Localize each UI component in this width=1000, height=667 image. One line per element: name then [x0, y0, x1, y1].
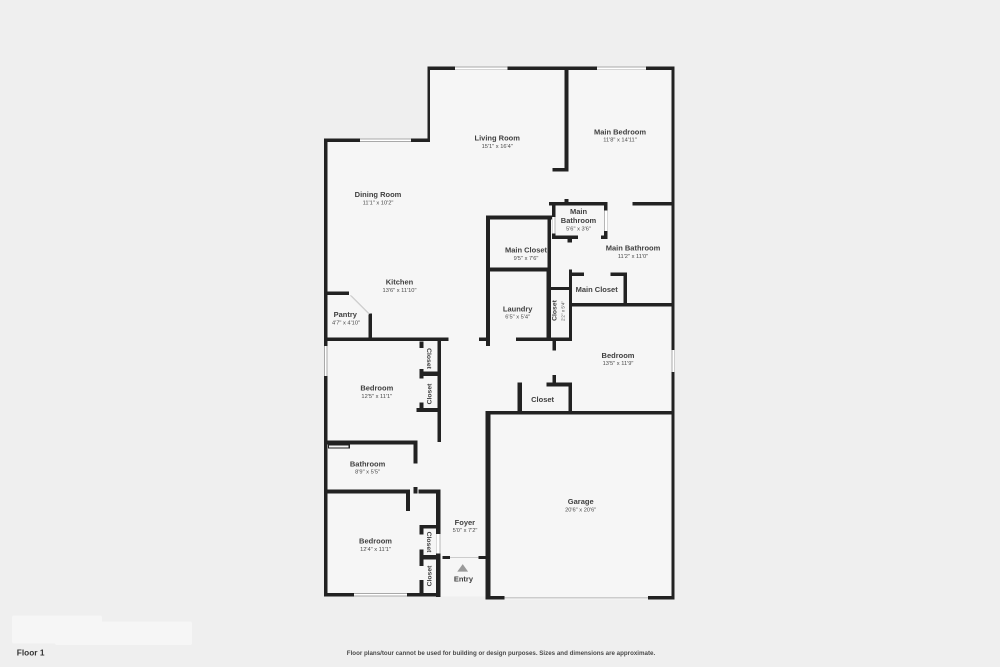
svg-text:20'6" x 20'6": 20'6" x 20'6"	[565, 507, 596, 513]
svg-text:Garage: Garage	[568, 497, 594, 506]
svg-text:Closet: Closet	[531, 395, 554, 404]
svg-text:11'2" x 11'0": 11'2" x 11'0"	[618, 254, 648, 260]
svg-text:13'5" x 11'9": 13'5" x 11'9"	[603, 361, 634, 367]
svg-text:Living Room: Living Room	[474, 134, 520, 143]
svg-text:Floor 1: Floor 1	[17, 648, 45, 658]
svg-text:8'9" x 5'5": 8'9" x 5'5"	[355, 470, 380, 476]
svg-text:Entry: Entry	[454, 575, 474, 584]
svg-text:Closet: Closet	[552, 299, 559, 321]
svg-text:Main Bathroom: Main Bathroom	[606, 244, 661, 253]
svg-text:Bedroom: Bedroom	[602, 351, 635, 360]
svg-text:Kitchen: Kitchen	[386, 278, 414, 287]
svg-text:12'5" x 11'1": 12'5" x 11'1"	[361, 394, 392, 400]
svg-text:Main: Main	[570, 207, 588, 216]
svg-text:Main Bedroom: Main Bedroom	[594, 128, 646, 137]
svg-text:11'8" x 14'11": 11'8" x 14'11"	[603, 138, 637, 144]
svg-text:Foyer: Foyer	[455, 518, 476, 527]
svg-text:5'0" x 7'2": 5'0" x 7'2"	[453, 528, 478, 534]
svg-text:Bathroom: Bathroom	[350, 460, 386, 469]
svg-text:Bathroom: Bathroom	[561, 216, 597, 225]
svg-text:Main Closet: Main Closet	[576, 285, 619, 294]
svg-text:Closet: Closet	[425, 348, 432, 370]
svg-text:2'2" x 5'4": 2'2" x 5'4"	[561, 301, 566, 321]
svg-text:Bedroom: Bedroom	[359, 537, 392, 546]
svg-text:4'7" x 4'10": 4'7" x 4'10"	[332, 320, 360, 326]
svg-text:9'5" x 7'6": 9'5" x 7'6"	[514, 256, 539, 262]
svg-text:6'5" x 5'4": 6'5" x 5'4"	[505, 315, 530, 321]
svg-text:Closet: Closet	[427, 565, 434, 587]
svg-text:11'1" x 10'2": 11'1" x 10'2"	[363, 200, 394, 206]
svg-text:Main Closet: Main Closet	[505, 246, 548, 255]
svg-text:13'6" x 11'10": 13'6" x 11'10"	[383, 288, 417, 294]
svg-text:Pantry: Pantry	[334, 310, 358, 319]
svg-text:15'1" x 16'4": 15'1" x 16'4"	[482, 144, 513, 150]
svg-text:Dining Room: Dining Room	[355, 190, 402, 199]
svg-text:Closet: Closet	[425, 532, 432, 554]
svg-text:Floor plans/tour cannot be use: Floor plans/tour cannot be used for buil…	[347, 650, 656, 657]
svg-text:5'6" x 3'6": 5'6" x 3'6"	[566, 227, 591, 233]
svg-text:Laundry: Laundry	[503, 305, 533, 314]
svg-text:Bedroom: Bedroom	[360, 384, 393, 393]
svg-text:12'4" x 11'1": 12'4" x 11'1"	[360, 547, 391, 553]
svg-text:Closet: Closet	[427, 383, 434, 405]
